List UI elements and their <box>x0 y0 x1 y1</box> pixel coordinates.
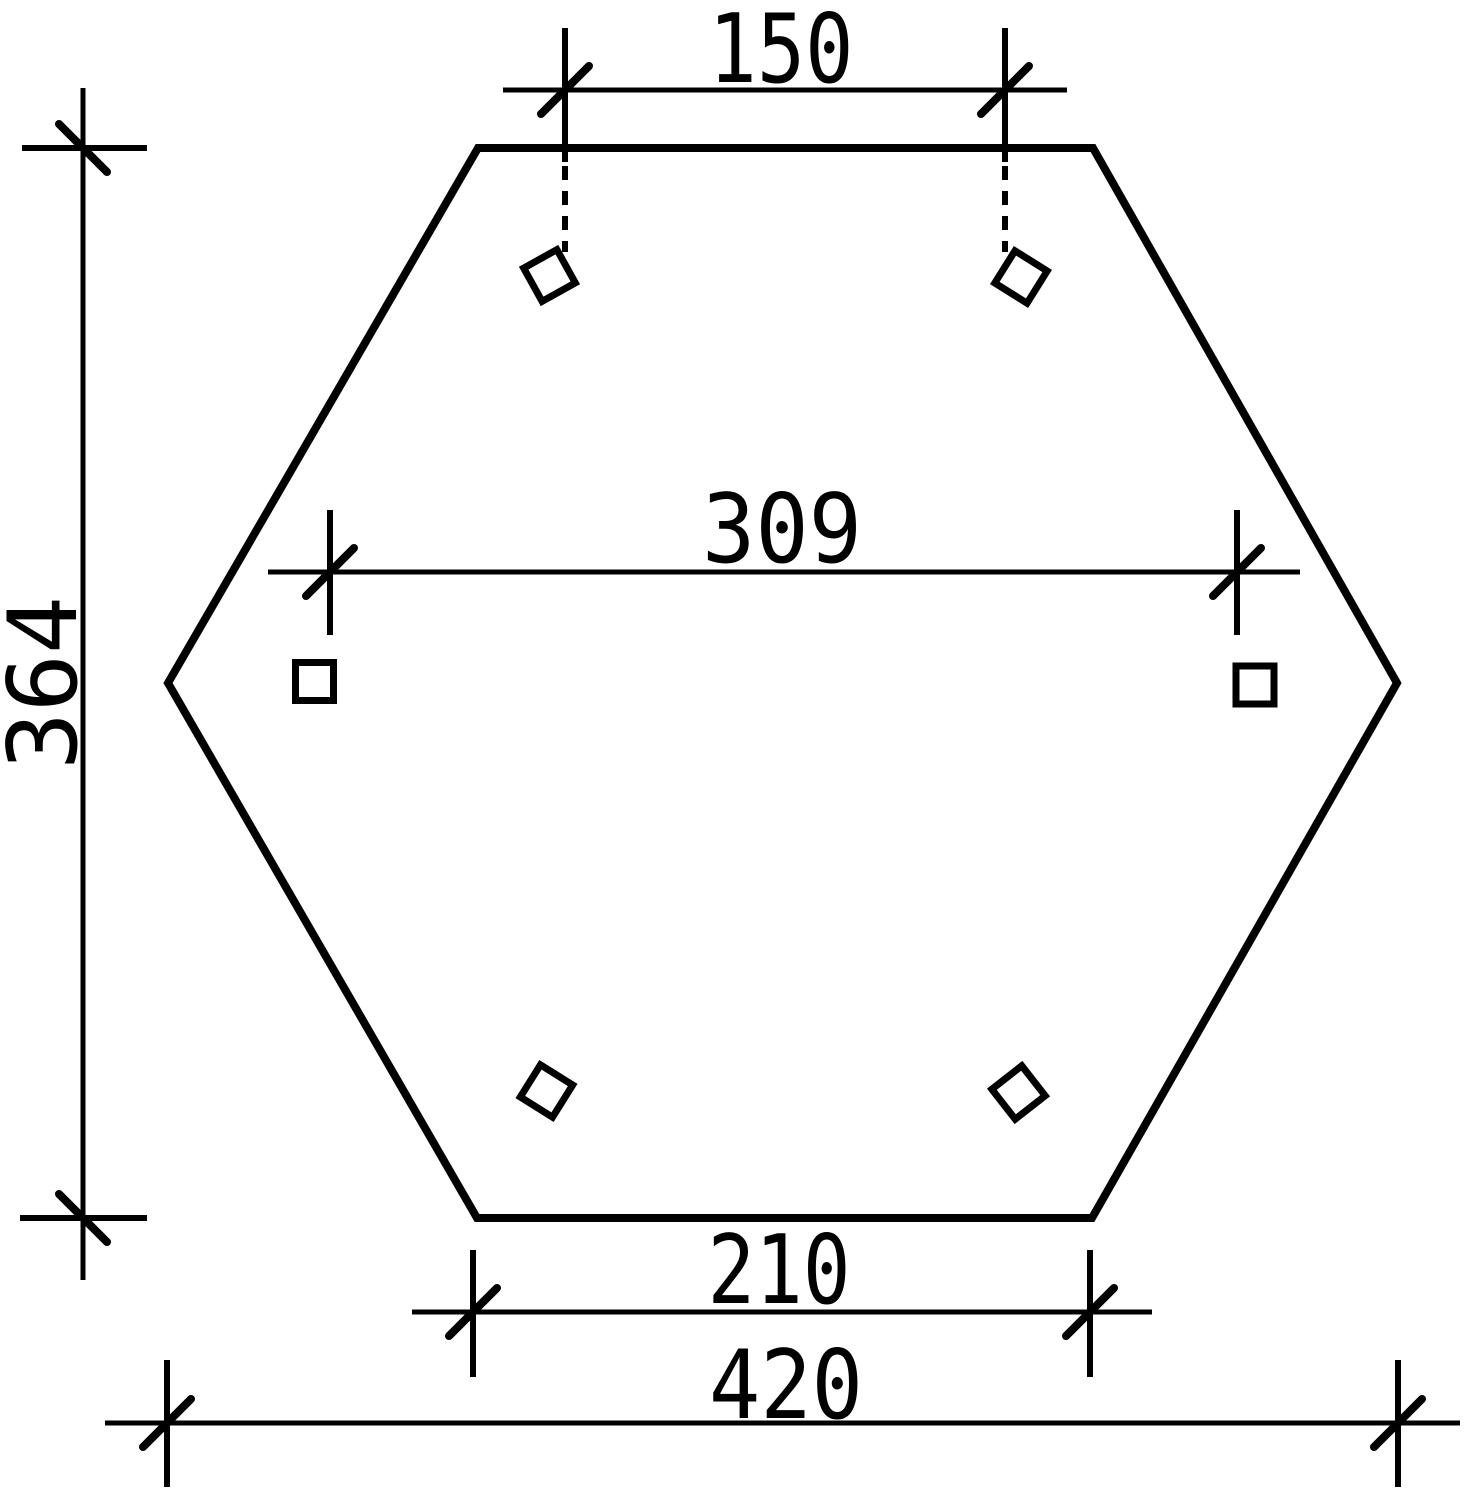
dim-label-150: 150 <box>709 0 854 105</box>
dim-label-420: 420 <box>709 1331 863 1441</box>
dim-label-309: 309 <box>702 475 862 585</box>
technical-drawing-page: 150 309 364 210 <box>0 0 1470 1500</box>
floor-plan-drawing: 150 309 364 210 <box>0 0 1470 1500</box>
dim-label-364: 364 <box>0 596 99 770</box>
dim-label-210: 210 <box>708 1216 851 1326</box>
